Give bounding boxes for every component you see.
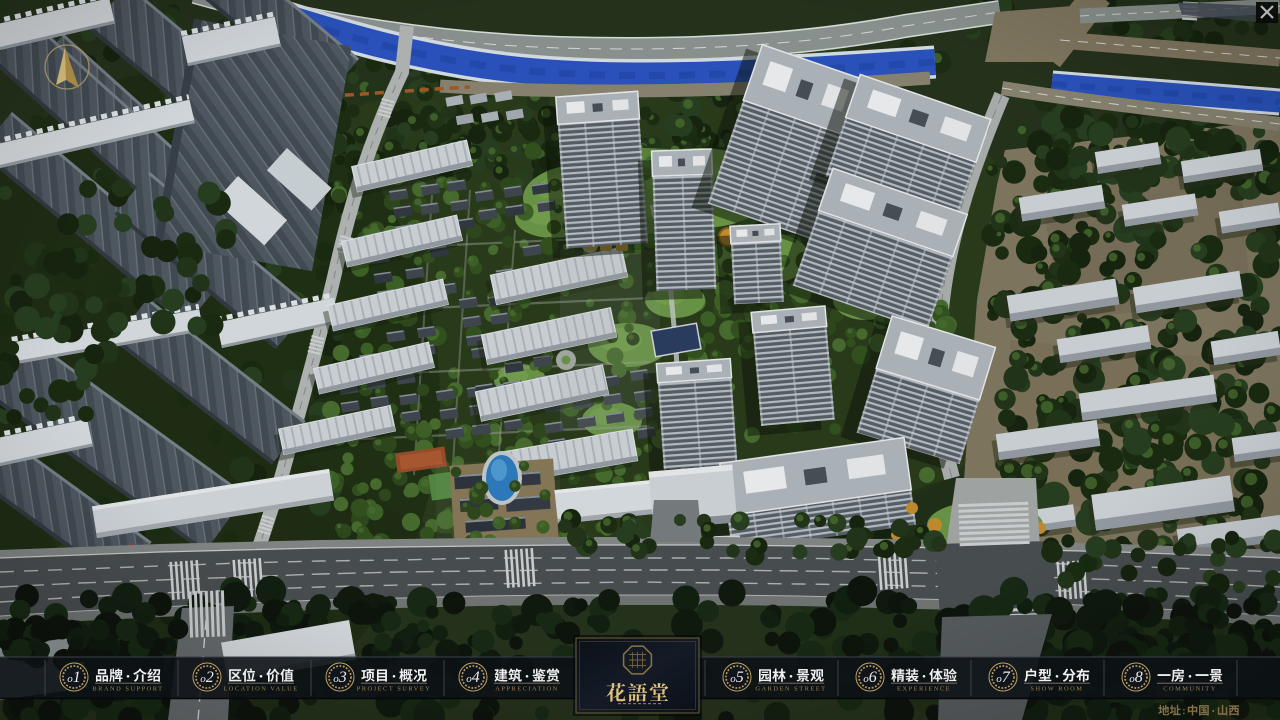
svg-text:LOCATION VALUE: LOCATION VALUE xyxy=(223,686,298,693)
svg-text:APPRECIATION: APPRECIATION xyxy=(495,686,558,693)
svg-text:EXPERIENCE: EXPERIENCE xyxy=(897,686,951,693)
svg-text:PROJECT SURVEY: PROJECT SURVEY xyxy=(357,686,432,693)
svg-text:BRAND SUPPORT: BRAND SUPPORT xyxy=(92,686,163,693)
svg-text:GARDEN STREET: GARDEN STREET xyxy=(755,686,826,693)
svg-text:COMMUNITY: COMMUNITY xyxy=(1163,686,1217,693)
svg-text:SHOW ROOM: SHOW ROOM xyxy=(1031,686,1084,693)
